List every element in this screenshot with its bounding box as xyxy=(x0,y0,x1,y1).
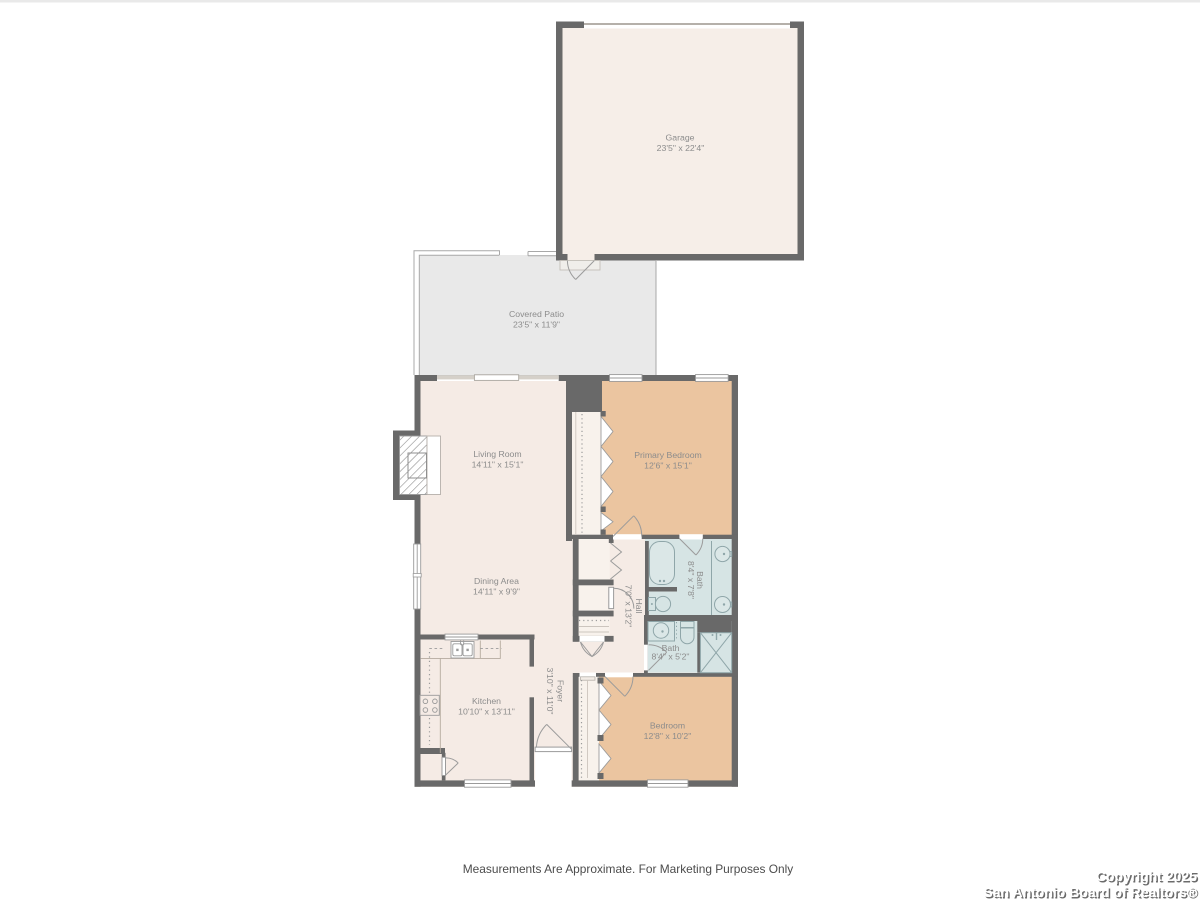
svg-text:Measurements Are Approximate.: Measurements Are Approximate. For Market… xyxy=(463,862,793,876)
svg-text:12'8" x 10'2": 12'8" x 10'2" xyxy=(644,731,692,741)
svg-text:8'4" x 5'2": 8'4" x 5'2" xyxy=(652,652,690,662)
svg-text:Covered Patio: Covered Patio xyxy=(509,309,564,319)
svg-text:Foyer: Foyer xyxy=(556,680,566,702)
svg-text:10'10" x 13'11": 10'10" x 13'11" xyxy=(458,707,515,717)
svg-text:23'5" x 11'9": 23'5" x 11'9" xyxy=(513,320,560,330)
svg-text:Garage: Garage xyxy=(666,133,695,143)
svg-text:Kitchen: Kitchen xyxy=(472,696,501,706)
svg-text:Hall: Hall xyxy=(634,599,644,614)
svg-text:12'6" x 15'1": 12'6" x 15'1" xyxy=(644,461,692,471)
svg-text:23'5" x 22'4": 23'5" x 22'4" xyxy=(657,143,705,153)
svg-text:14'11" x 9'9": 14'11" x 9'9" xyxy=(473,587,520,597)
svg-text:Dining Area: Dining Area xyxy=(474,576,519,586)
svg-text:Primary Bedroom: Primary Bedroom xyxy=(634,450,702,460)
svg-text:Copyright 2025: Copyright 2025 xyxy=(1096,868,1197,884)
svg-text:San Antonio Board of Realtors®: San Antonio Board of Realtors® xyxy=(983,884,1197,900)
svg-text:Living Room: Living Room xyxy=(473,449,521,459)
svg-text:7'0" x 13'2": 7'0" x 13'2" xyxy=(624,585,634,628)
svg-text:14'11" x 15'1": 14'11" x 15'1" xyxy=(472,460,524,470)
svg-text:3'10" x 11'0": 3'10" x 11'0" xyxy=(545,668,555,715)
svg-text:8'4" x 7'8": 8'4" x 7'8" xyxy=(686,561,696,599)
svg-text:Bedroom: Bedroom xyxy=(650,721,685,731)
